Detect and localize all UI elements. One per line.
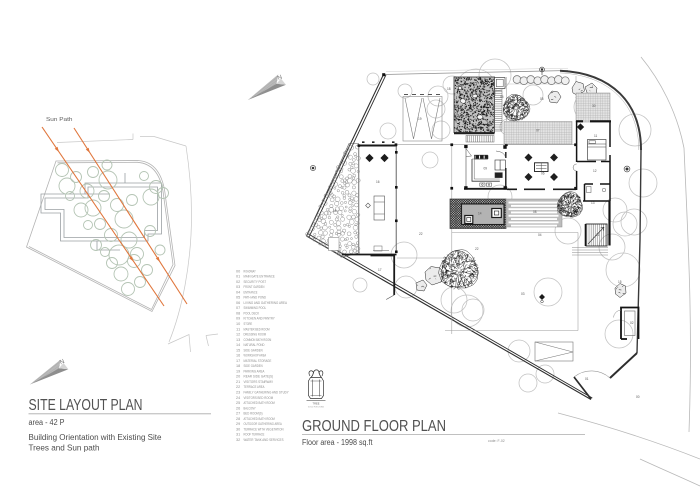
svg-text:VISITORS STAIRWAY: VISITORS STAIRWAY — [244, 380, 274, 384]
svg-text:18: 18 — [447, 87, 451, 91]
svg-text:06: 06 — [236, 301, 240, 305]
svg-text:15: 15 — [333, 209, 337, 213]
svg-text:18: 18 — [236, 364, 240, 368]
svg-text:09: 09 — [236, 317, 240, 321]
svg-text:TERRACE WITH VEGETATION: TERRACE WITH VEGETATION — [244, 427, 284, 431]
svg-text:09: 09 — [484, 167, 488, 171]
svg-text:SECURITY POST: SECURITY POST — [244, 280, 267, 284]
svg-text:10: 10 — [236, 322, 240, 326]
svg-text:Floor area - 1998 sq.ft: Floor area - 1998 sq.ft — [302, 438, 373, 447]
svg-text:07: 07 — [536, 129, 540, 133]
svg-text:05: 05 — [236, 296, 240, 300]
svg-text:23: 23 — [236, 391, 240, 395]
svg-text:TREE: TREE — [313, 402, 320, 406]
svg-text:28: 28 — [236, 417, 240, 421]
svg-text:02: 02 — [630, 321, 634, 325]
svg-text:ATTACHED BATH ROOM: ATTACHED BATH ROOM — [244, 401, 275, 405]
svg-text:16: 16 — [236, 354, 240, 358]
svg-text:03: 03 — [521, 292, 525, 296]
svg-text:15: 15 — [236, 348, 240, 352]
svg-text:30: 30 — [236, 427, 240, 431]
svg-text:KITCHEN AND PANTRY: KITCHEN AND PANTRY — [244, 317, 276, 321]
svg-text:03: 03 — [236, 285, 240, 289]
svg-text:14: 14 — [478, 212, 482, 216]
svg-text:TERRACE AREA: TERRACE AREA — [244, 385, 265, 389]
svg-text:29: 29 — [236, 422, 240, 426]
svg-text:06: 06 — [541, 172, 545, 176]
svg-text:LIVING AND GATHERING AREA: LIVING AND GATHERING AREA — [244, 301, 288, 305]
svg-text:Building Orientation with Exis: Building Orientation with Existing Site — [29, 433, 162, 442]
svg-text:26: 26 — [236, 406, 240, 410]
svg-text:04: 04 — [538, 233, 542, 237]
svg-text:30: 30 — [592, 104, 596, 108]
svg-text:16: 16 — [376, 180, 380, 184]
svg-text:25: 25 — [236, 401, 240, 405]
svg-text:Trees and Sun path: Trees and Sun path — [29, 444, 100, 453]
svg-text:31: 31 — [236, 433, 240, 437]
svg-text:17: 17 — [236, 359, 240, 363]
svg-text:MATERIAL STORAGE: MATERIAL STORAGE — [244, 359, 272, 363]
svg-text:ROADWAY: ROADWAY — [244, 269, 256, 273]
svg-text:00: 00 — [236, 269, 240, 273]
svg-text:NATURAL POND: NATURAL POND — [244, 343, 265, 347]
svg-text:MASTER BED ROOM: MASTER BED ROOM — [244, 327, 270, 331]
svg-text:12: 12 — [593, 169, 597, 173]
svg-text:REAR SIDE GATE(S): REAR SIDE GATE(S) — [244, 375, 274, 379]
svg-text:FRONT GARDEN: FRONT GARDEN — [244, 285, 265, 289]
svg-text:PARKING AREA: PARKING AREA — [244, 369, 265, 373]
svg-text:14: 14 — [236, 343, 240, 347]
svg-text:04: 04 — [236, 290, 240, 294]
svg-text:22: 22 — [236, 385, 240, 389]
svg-text:32: 32 — [236, 438, 240, 442]
svg-text:21: 21 — [596, 233, 600, 237]
svg-text:SIDE GARDEN: SIDE GARDEN — [244, 348, 263, 352]
svg-text:24: 24 — [236, 396, 240, 400]
svg-text:12: 12 — [236, 333, 240, 337]
svg-text:13: 13 — [236, 338, 240, 342]
svg-text:DRESSING ROOM: DRESSING ROOM — [244, 333, 267, 337]
svg-text:BALCONY: BALCONY — [244, 406, 257, 410]
svg-text:08: 08 — [236, 312, 240, 316]
svg-text:FAMILY GATHERING AND STUDY: FAMILY GATHERING AND STUDY — [244, 391, 290, 395]
svg-text:PATH AND POND: PATH AND POND — [244, 296, 267, 300]
svg-text:08: 08 — [533, 210, 537, 214]
svg-text:11: 11 — [236, 327, 240, 331]
svg-text:07: 07 — [236, 306, 240, 310]
svg-text:17: 17 — [378, 268, 382, 272]
svg-text:SWIMMING POOL: SWIMMING POOL — [244, 306, 267, 310]
svg-text:OUTDOOR GATHERING AREA: OUTDOOR GATHERING AREA — [244, 422, 283, 426]
svg-text:21: 21 — [236, 380, 240, 384]
svg-text:WATER TANK AND SERVICES: WATER TANK AND SERVICES — [244, 438, 284, 442]
svg-text:area - 42 P: area - 42 P — [29, 418, 65, 427]
svg-text:27: 27 — [236, 412, 240, 416]
svg-text:20: 20 — [236, 375, 240, 379]
svg-text:SITE LAYOUT PLAN: SITE LAYOUT PLAN — [29, 397, 143, 414]
svg-text:00: 00 — [636, 395, 640, 399]
svg-text:02: 02 — [236, 280, 240, 284]
svg-text:ENTRANCE: ENTRANCE — [244, 290, 258, 294]
svg-text:ROOF TERRACE: ROOF TERRACE — [244, 433, 265, 437]
svg-text:SIDE GARDEN: SIDE GARDEN — [244, 364, 263, 368]
svg-text:GROUND FLOOR PLAN: GROUND FLOOR PLAN — [302, 418, 446, 435]
svg-text:05: 05 — [500, 95, 504, 99]
svg-text:05: 05 — [540, 97, 544, 101]
svg-text:POOL DECK: POOL DECK — [244, 312, 260, 316]
svg-text:VISITORS BED ROOM: VISITORS BED ROOM — [244, 396, 274, 400]
svg-text:13: 13 — [591, 201, 595, 205]
svg-text:WORKSHOP AREA: WORKSHOP AREA — [244, 354, 267, 358]
svg-text:19: 19 — [418, 117, 422, 121]
svg-text:code: F-02: code: F-02 — [488, 439, 505, 443]
svg-text:MAIN GATE ENTRANCE: MAIN GATE ENTRANCE — [244, 275, 276, 279]
svg-text:22: 22 — [475, 247, 479, 251]
svg-text:19: 19 — [236, 369, 240, 373]
svg-text:Sun Path: Sun Path — [46, 117, 73, 123]
svg-text:ATTACHED BATH ROOM: ATTACHED BATH ROOM — [244, 417, 275, 421]
svg-text:COMMON BATH ROOM: COMMON BATH ROOM — [244, 338, 272, 342]
svg-text:22: 22 — [419, 232, 423, 236]
svg-text:11: 11 — [594, 134, 598, 138]
svg-text:01: 01 — [585, 377, 589, 381]
svg-text:BED ROOM(S): BED ROOM(S) — [244, 412, 264, 416]
svg-text:STORE: STORE — [244, 322, 253, 326]
svg-text:01: 01 — [236, 275, 240, 279]
svg-text:GOOD FOR LIVING: GOOD FOR LIVING — [308, 407, 325, 409]
